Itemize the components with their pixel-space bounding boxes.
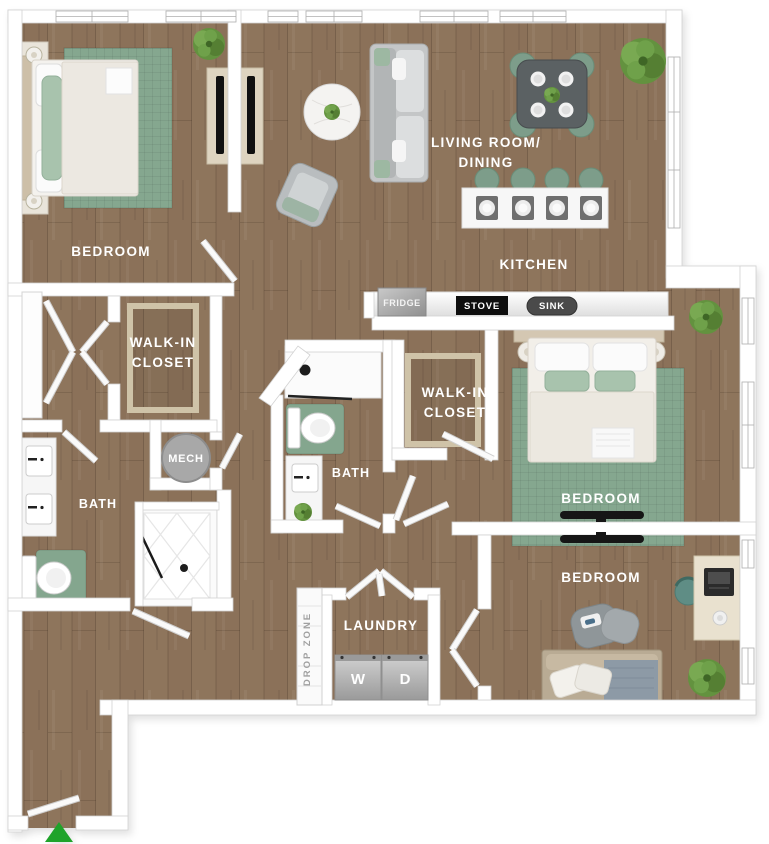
apartment-floor-plan: FRIDGE STOVE SINK BEDROOM LIVING ROOM/ D…	[0, 0, 769, 844]
sink-label: SINK	[539, 301, 565, 312]
fridge: FRIDGE	[378, 288, 426, 316]
label-bath-middle: BATH	[332, 466, 370, 480]
label-washer: W	[351, 671, 366, 688]
label-bedroom-top-left: BEDROOM	[71, 244, 151, 259]
stove: STOVE	[456, 296, 508, 315]
plant-icon	[193, 28, 225, 60]
label-kitchen: KITCHEN	[499, 257, 568, 272]
floor-plan-page: FRIDGE STOVE SINK BEDROOM LIVING ROOM/ D…	[0, 0, 769, 844]
label-walk-in-middle-line2: CLOSET	[424, 405, 487, 420]
label-bath-left: BATH	[79, 497, 117, 511]
bed-top-left	[22, 42, 138, 214]
label-mech: MECH	[168, 453, 204, 465]
label-living-room-line2: DINING	[458, 155, 513, 170]
label-living-room-line1: LIVING ROOM/	[431, 135, 541, 150]
closet-shelving-middle	[408, 356, 478, 444]
hall-linen-closet	[22, 292, 42, 418]
label-drop-zone: DROP ZONE	[302, 612, 313, 686]
label-walk-in-left-line1: WALK-IN	[130, 335, 197, 350]
sofa	[370, 44, 428, 182]
label-walk-in-middle-line1: WALK-IN	[422, 385, 489, 400]
plant-icon	[294, 503, 312, 521]
plant-icon	[688, 659, 726, 697]
plant-icon	[620, 38, 666, 84]
label-laundry: LAUNDRY	[344, 618, 419, 633]
label-bedroom-bottom: BEDROOM	[561, 570, 641, 585]
plant-icon	[544, 87, 560, 103]
sink: SINK	[527, 297, 577, 315]
fridge-label: FRIDGE	[383, 298, 421, 308]
label-walk-in-left-line2: CLOSET	[132, 355, 195, 370]
bed-right	[514, 328, 665, 462]
plant-icon	[689, 300, 723, 334]
kitchen-island	[462, 168, 608, 228]
stove-label: STOVE	[464, 301, 500, 312]
label-bedroom-right: BEDROOM	[561, 491, 641, 506]
label-dryer: D	[400, 671, 411, 688]
plant-icon	[324, 104, 340, 120]
